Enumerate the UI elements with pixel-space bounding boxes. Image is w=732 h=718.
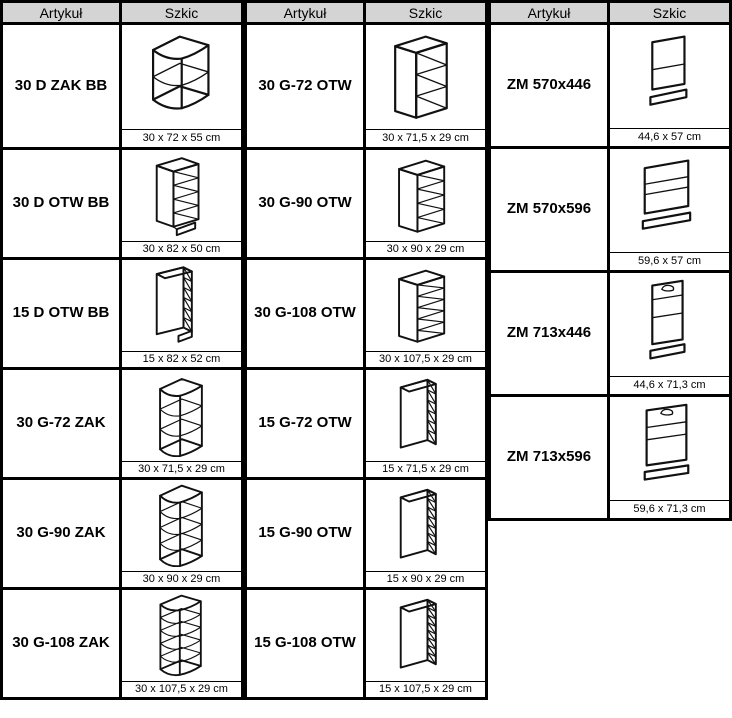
article-label: 15 D OTW BB bbox=[3, 260, 122, 367]
table-2-header: Artykuł Szkic bbox=[247, 3, 485, 22]
article-label: 15 G-72 OTW bbox=[247, 370, 366, 477]
sketch-cell: 44,6 x 71,3 cm bbox=[610, 273, 729, 394]
sketch-cell: 15 x 82 x 52 cm bbox=[122, 260, 241, 367]
dimensions-label: 44,6 x 71,3 cm bbox=[610, 376, 729, 394]
article-label: 30 G-108 ZAK bbox=[3, 590, 122, 697]
table-row: 30 G-72 ZAK 30 x 71,5 x 29 cm bbox=[3, 367, 241, 477]
dimensions-label: 30 x 90 x 29 cm bbox=[122, 571, 241, 587]
table-row: 30 G-90 OTW 30 x 90 x 29 cm bbox=[247, 147, 485, 257]
open-rack-4-icon bbox=[366, 150, 485, 241]
sketch-cell: 44,6 x 57 cm bbox=[610, 25, 729, 146]
table-row: ZM 570x596 59,6 x 57 cm bbox=[491, 146, 729, 270]
sketch-cell: 15 x 71,5 x 29 cm bbox=[366, 370, 485, 477]
column-header-szkic: Szkic bbox=[122, 3, 241, 22]
table-row: 15 G-90 OTW 15 x 90 x 29 cm bbox=[247, 477, 485, 587]
table-row: 30 G-108 ZAK 30 x 107,5 x 29 cm bbox=[3, 587, 241, 697]
column-header-szkic: Szkic bbox=[610, 3, 729, 22]
dimensions-label: 30 x 71,5 x 29 cm bbox=[122, 461, 241, 477]
sketch-cell: 30 x 90 x 29 cm bbox=[366, 150, 485, 257]
table-row: ZM 713x596 59,6 x 71,3 cm bbox=[491, 394, 729, 518]
sketch-cell: 30 x 107,5 x 29 cm bbox=[122, 590, 241, 697]
drip-panel-2-lines-icon bbox=[610, 149, 729, 252]
catalog-page: Artykuł Szkic 30 D ZAK BB 30 x 72 x 55 c… bbox=[0, 0, 732, 700]
sketch-cell: 30 x 71,5 x 29 cm bbox=[366, 25, 485, 147]
sketch-cell: 15 x 90 x 29 cm bbox=[366, 480, 485, 587]
dimensions-label: 30 x 90 x 29 cm bbox=[366, 241, 485, 257]
article-label: 15 G-90 OTW bbox=[247, 480, 366, 587]
table-row: 15 G-108 OTW 15 x 107,5 x 29 cm bbox=[247, 587, 485, 697]
open-rack-base-icon bbox=[122, 150, 241, 241]
column-header-szkic: Szkic bbox=[366, 3, 485, 22]
open-rack-5-icon bbox=[366, 260, 485, 351]
table-row: 30 G-72 OTW 30 x 71,5 x 29 cm bbox=[247, 22, 485, 147]
dimensions-label: 15 x 71,5 x 29 cm bbox=[366, 461, 485, 477]
table-row: ZM 713x446 44,6 x 71,3 cm bbox=[491, 270, 729, 394]
drip-panel-handle-wide-icon bbox=[610, 397, 729, 500]
narrow-rack-7-icon bbox=[366, 480, 485, 571]
article-label: 30 G-72 OTW bbox=[247, 25, 366, 147]
catalog-table-3: Artykuł Szkic ZM 570x446 44,6 x 57 cm ZM… bbox=[488, 0, 732, 521]
dimensions-label: 15 x 82 x 52 cm bbox=[122, 351, 241, 367]
dimensions-label: 15 x 107,5 x 29 cm bbox=[366, 681, 485, 697]
dimensions-label: 30 x 72 x 55 cm bbox=[122, 129, 241, 147]
narrow-rack-8-icon bbox=[366, 590, 485, 681]
sketch-cell: 30 x 90 x 29 cm bbox=[122, 480, 241, 587]
column-header-artykul: Artykuł bbox=[3, 3, 122, 22]
dimensions-label: 59,6 x 71,3 cm bbox=[610, 500, 729, 518]
article-label: 30 G-72 ZAK bbox=[3, 370, 122, 477]
article-label: ZM 570x596 bbox=[491, 149, 610, 270]
open-rack-3-icon bbox=[366, 25, 485, 129]
sketch-cell: 30 x 71,5 x 29 cm bbox=[122, 370, 241, 477]
dimensions-label: 30 x 107,5 x 29 cm bbox=[366, 351, 485, 367]
corner-shelf-3-icon bbox=[122, 370, 241, 461]
article-label: 30 G-108 OTW bbox=[247, 260, 366, 367]
table-row: 15 G-72 OTW 15 x 71,5 x 29 cm bbox=[247, 367, 485, 477]
sketch-cell: 30 x 72 x 55 cm bbox=[122, 25, 241, 147]
article-label: 15 G-108 OTW bbox=[247, 590, 366, 697]
table-row: ZM 570x446 44,6 x 57 cm bbox=[491, 22, 729, 146]
narrow-rack-6-icon bbox=[366, 370, 485, 461]
sketch-cell: 30 x 107,5 x 29 cm bbox=[366, 260, 485, 367]
article-label: ZM 713x596 bbox=[491, 397, 610, 518]
table-row: 15 D OTW BB 15 x 82 x 52 cm bbox=[3, 257, 241, 367]
corner-shelf-2-icon bbox=[122, 25, 241, 129]
article-label: 30 D OTW BB bbox=[3, 150, 122, 257]
dimensions-label: 15 x 90 x 29 cm bbox=[366, 571, 485, 587]
dimensions-label: 44,6 x 57 cm bbox=[610, 128, 729, 146]
article-label: ZM 713x446 bbox=[491, 273, 610, 394]
dimensions-label: 30 x 107,5 x 29 cm bbox=[122, 681, 241, 697]
table-row: 30 D OTW BB 30 x 82 x 50 cm bbox=[3, 147, 241, 257]
table-3-header: Artykuł Szkic bbox=[491, 3, 729, 22]
corner-shelf-5-icon bbox=[122, 590, 241, 681]
narrow-rack-base-icon bbox=[122, 260, 241, 351]
article-label: 30 D ZAK BB bbox=[3, 25, 122, 147]
table-row: 30 G-108 OTW 30 x 107,5 x 29 cm bbox=[247, 257, 485, 367]
sketch-cell: 15 x 107,5 x 29 cm bbox=[366, 590, 485, 697]
dimensions-label: 59,6 x 57 cm bbox=[610, 252, 729, 270]
sketch-cell: 59,6 x 57 cm bbox=[610, 149, 729, 270]
column-header-artykul: Artykuł bbox=[247, 3, 366, 22]
sketch-cell: 30 x 82 x 50 cm bbox=[122, 150, 241, 257]
dimensions-label: 30 x 71,5 x 29 cm bbox=[366, 129, 485, 147]
dimensions-label: 30 x 82 x 50 cm bbox=[122, 241, 241, 257]
article-label: 30 G-90 ZAK bbox=[3, 480, 122, 587]
table-row: 30 G-90 ZAK 30 x 90 x 29 cm bbox=[3, 477, 241, 587]
corner-shelf-4-icon bbox=[122, 480, 241, 571]
catalog-table-1: Artykuł Szkic 30 D ZAK BB 30 x 72 x 55 c… bbox=[0, 0, 244, 700]
drip-panel-1-line-icon bbox=[610, 25, 729, 128]
sketch-cell: 59,6 x 71,3 cm bbox=[610, 397, 729, 518]
column-header-artykul: Artykuł bbox=[491, 3, 610, 22]
catalog-table-2: Artykuł Szkic 30 G-72 OTW 30 x 71,5 x 29… bbox=[244, 0, 488, 700]
article-label: ZM 570x446 bbox=[491, 25, 610, 146]
article-label: 30 G-90 OTW bbox=[247, 150, 366, 257]
drip-panel-handle-narrow-icon bbox=[610, 273, 729, 376]
table-1-header: Artykuł Szkic bbox=[3, 3, 241, 22]
table-row: 30 D ZAK BB 30 x 72 x 55 cm bbox=[3, 22, 241, 147]
